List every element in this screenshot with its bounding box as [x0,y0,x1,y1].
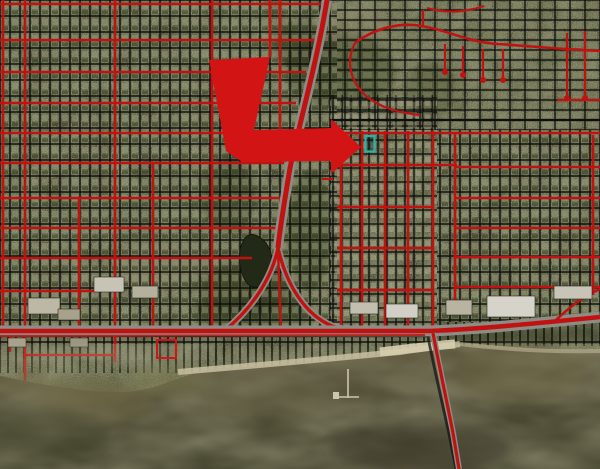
selected-parcel-marker[interactable] [366,136,375,152]
aerial-map-canvas[interactable] [0,0,600,469]
map-viewport[interactable] [0,0,600,469]
